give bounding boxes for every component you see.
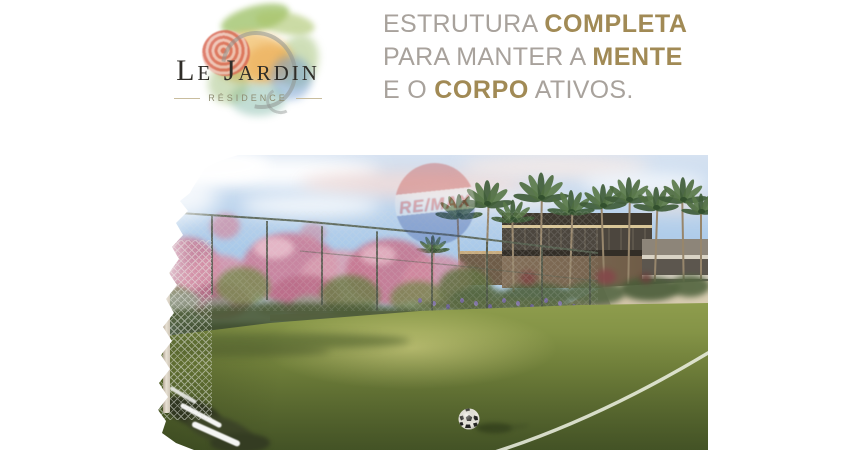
headline-line-2: PARA MANTER A MENTE <box>383 41 688 74</box>
vegetation-blob <box>670 275 708 297</box>
residence-window-band <box>642 259 708 275</box>
remax-watermark: RE/MAX <box>385 163 485 258</box>
palm-crown <box>600 203 607 208</box>
headline: ESTRUTURA COMPLETA PARA MANTER A MENTE E… <box>383 8 688 107</box>
headline-text: E O <box>383 76 434 104</box>
headline-text: ATIVOS. <box>529 76 634 104</box>
headline-line-1: ESTRUTURA COMPLETA <box>383 8 688 41</box>
brand-name: Le Jardin <box>150 56 346 86</box>
brand-subtitle: RÉSIDENCE <box>208 93 288 103</box>
headline-text: ESTRUTURA <box>383 10 544 38</box>
subtitle-rule-left <box>174 98 200 99</box>
subtitle-rule-right <box>296 98 322 99</box>
render-photo-soccer-field: RE/MAX <box>150 155 708 450</box>
headline-line-3: E O CORPO ATIVOS. <box>383 74 688 107</box>
headline-bold: CORPO <box>434 76 529 104</box>
brand-subtitle-row: RÉSIDENCE <box>150 93 346 103</box>
vegetation-blob <box>640 273 652 283</box>
palm-crown <box>626 197 633 202</box>
palm-crown <box>698 209 705 214</box>
headline-bold: COMPLETA <box>544 10 687 38</box>
palm-trunk <box>700 214 702 280</box>
ball-shading <box>459 409 480 430</box>
palm-crown <box>653 205 660 210</box>
vegetation-blob <box>596 269 616 285</box>
headline-text: PARA MANTER A <box>383 43 592 71</box>
headline-bold: MENTE <box>592 43 683 71</box>
soccer-ball <box>457 407 481 431</box>
palm-crown <box>538 195 545 200</box>
fence-mesh <box>150 211 598 311</box>
brand-logo: Le Jardin RÉSIDENCE <box>150 4 346 124</box>
